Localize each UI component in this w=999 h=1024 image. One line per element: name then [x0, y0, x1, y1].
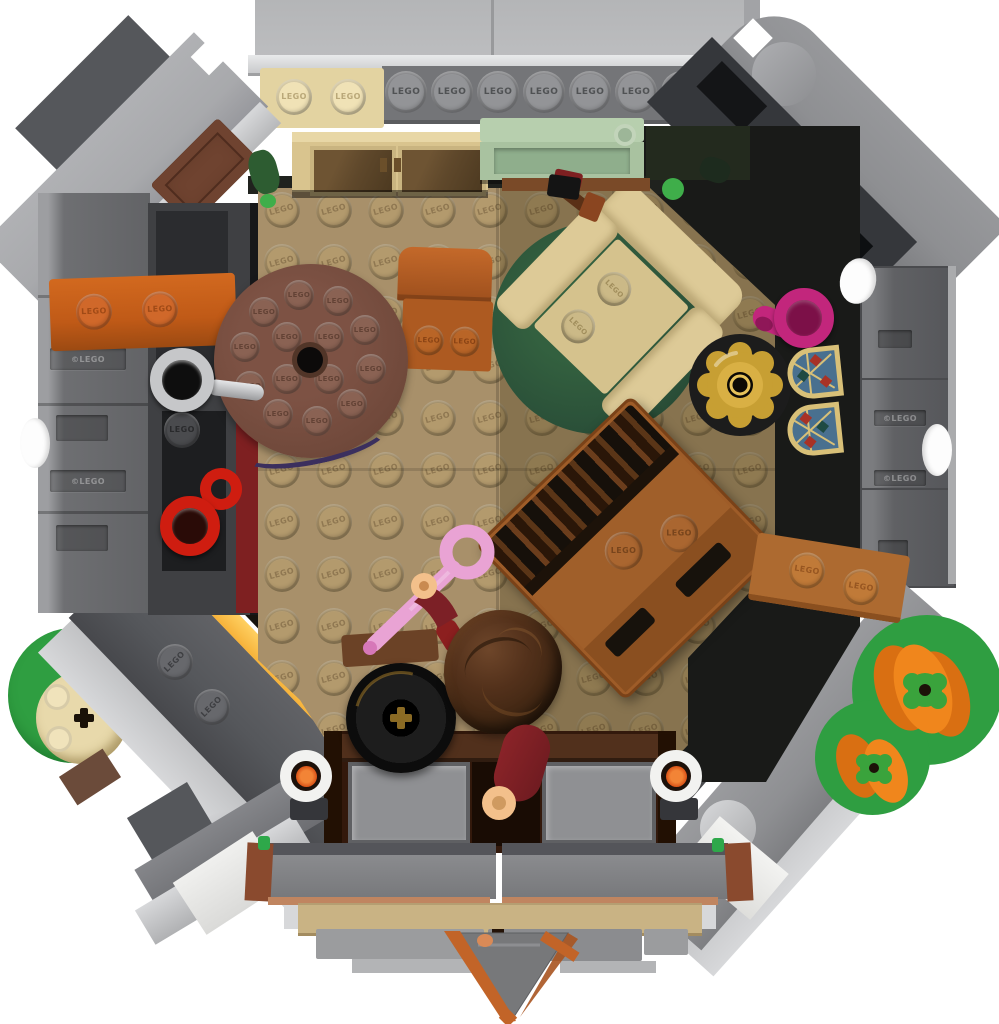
stud: LEGO	[413, 325, 444, 356]
stud-label: LEGO	[281, 93, 307, 101]
stud-label: LEGO	[568, 316, 589, 337]
stud-label: LEGO	[373, 203, 400, 217]
stud-label: LEGO	[373, 255, 400, 269]
stud-label: LEGO	[321, 619, 348, 633]
front-wall-brown-strip	[245, 842, 274, 901]
stud-label: LEGO	[477, 203, 504, 217]
pumpkin-small	[830, 728, 916, 809]
right-wall-lego-tile: ©LEGO	[874, 470, 926, 486]
stud-label: LEGO	[321, 203, 348, 217]
stud-label: LEGO	[530, 88, 559, 97]
stud: LEGO	[272, 322, 302, 352]
tile-label: ©LEGO	[71, 355, 105, 364]
black-cauldron	[346, 663, 456, 773]
stud-label: LEGO	[269, 619, 296, 633]
stud: LEGO	[569, 71, 611, 113]
cabinet-glass-door	[398, 146, 486, 196]
front-wall-lip	[502, 843, 728, 855]
pumpkins	[830, 608, 999, 813]
stud: LEGO	[356, 354, 386, 384]
cabinet-top-bar: LEGOLEGO	[260, 68, 384, 128]
leaf-stud	[662, 178, 684, 200]
stud: LEGO	[554, 302, 602, 350]
leaf-stud	[260, 194, 276, 208]
stud-label: LEGO	[163, 650, 187, 674]
stud: LEGO	[323, 286, 353, 316]
left-wall-recess	[56, 525, 108, 551]
stud: LEGO	[316, 556, 352, 592]
step-cap	[700, 905, 716, 929]
stud-label: LEGO	[425, 203, 452, 217]
stud: LEGO	[590, 265, 638, 313]
stud: LEGO	[316, 504, 352, 540]
stud-label: LEGO	[318, 334, 341, 341]
stud-label: LEGO	[267, 411, 290, 418]
stud-label: LEGO	[321, 671, 348, 685]
chair-back	[397, 246, 493, 303]
hand-tool	[546, 176, 616, 226]
stud-label: LEGO	[611, 547, 637, 555]
stud: LEGO	[249, 297, 279, 327]
stud: LEGO	[276, 79, 312, 115]
right-wall-recess	[878, 330, 912, 348]
step-gray	[644, 929, 688, 955]
stud-label: LEGO	[288, 292, 311, 299]
front-wall-panel	[502, 843, 728, 899]
tile-label: ©LEGO	[883, 474, 917, 483]
stud-label: LEGO	[200, 695, 224, 719]
stud: LEGO	[141, 291, 178, 328]
flesh-knob	[477, 934, 493, 947]
front-wall-lip	[268, 843, 496, 855]
stud: LEGO	[314, 322, 344, 352]
doormat	[542, 762, 656, 844]
left-wall-lego-tile: ©LEGO	[50, 470, 126, 492]
shelf-side-stud	[614, 124, 636, 146]
green-clip	[712, 838, 724, 852]
stud-label: LEGO	[318, 376, 341, 383]
stud: LEGO	[272, 364, 302, 394]
stump-stud	[46, 726, 72, 752]
hinge-bump	[922, 424, 952, 476]
stud: LEGO	[597, 524, 651, 578]
stud: LEGO	[385, 71, 427, 113]
candle	[276, 746, 338, 824]
tile-label: ©LEGO	[883, 414, 917, 423]
mug-handle	[207, 379, 265, 402]
stained-glass-window	[780, 399, 846, 461]
cauldron-axle	[397, 707, 405, 729]
stud-label: LEGO	[147, 305, 173, 314]
stud-label: LEGO	[335, 93, 361, 101]
tile-label: ©LEGO	[71, 477, 105, 486]
mug-body	[150, 348, 214, 412]
orange-wall-bracket: LEGOLEGO	[49, 273, 237, 351]
stud-label: LEGO	[354, 327, 377, 334]
stud-label: LEGO	[269, 515, 296, 529]
stud-label: LEGO	[276, 376, 299, 383]
right-wall-edge	[948, 266, 956, 584]
lego-hut-top-view: LEGOLEGOLEGOLEGOLEGOLEGOLEGOLEGO LEGOLEG…	[0, 0, 999, 1024]
stud-label: LEGO	[321, 567, 348, 581]
stud: LEGO	[75, 293, 112, 330]
stud: LEGO	[449, 326, 480, 357]
cabinet-bevel	[292, 132, 488, 142]
stud-label: LEGO	[666, 529, 692, 537]
hinge-bump	[20, 418, 50, 468]
candle	[646, 746, 708, 824]
jug-body	[774, 288, 834, 348]
left-wall-recess	[56, 415, 108, 441]
silver-mug	[148, 344, 266, 432]
wall-seam	[38, 403, 150, 406]
stud: LEGO	[263, 399, 293, 429]
stud-label: LEGO	[253, 309, 276, 316]
stud: LEGO	[264, 556, 300, 592]
stud-label: LEGO	[276, 334, 299, 341]
stump-stud	[44, 684, 70, 710]
stud-label: LEGO	[269, 567, 296, 581]
stud: LEGO	[330, 79, 366, 115]
stud-label: LEGO	[425, 411, 452, 425]
cabinet-handle	[380, 158, 387, 172]
stud: LEGO	[523, 71, 565, 113]
stud: LEGO	[420, 400, 456, 436]
left-wall-lego-tile: ©LEGO	[50, 348, 126, 370]
left-wall-outer: ©LEGO ©LEGO	[38, 193, 150, 613]
wall-seam	[38, 511, 150, 514]
porch-gable	[420, 931, 592, 1024]
doormat	[348, 762, 470, 844]
stud-label: LEGO	[392, 88, 421, 97]
stud: LEGO	[264, 608, 300, 644]
stud: LEGO	[157, 644, 193, 680]
front-wall-panel	[268, 843, 496, 899]
stud-label: LEGO	[622, 88, 651, 97]
stud-label: LEGO	[794, 565, 820, 577]
right-wall-lego-tile: ©LEGO	[874, 410, 926, 426]
stud-label: LEGO	[484, 88, 513, 97]
stud-label: LEGO	[327, 298, 350, 305]
interior-green-dark	[646, 126, 750, 180]
cabinet-shadow	[292, 190, 488, 198]
cabinet-handle	[394, 158, 401, 172]
minifig-hand	[482, 786, 516, 820]
stud: LEGO	[350, 315, 380, 345]
stud-label: LEGO	[321, 515, 348, 529]
red-mug	[154, 468, 262, 566]
stud-label: LEGO	[360, 366, 383, 373]
stud: LEGO	[194, 689, 230, 725]
pumpkin-large	[864, 637, 981, 744]
candle-flame	[296, 766, 317, 787]
candle-flame	[666, 766, 687, 787]
stained-glass-window	[780, 343, 845, 403]
mug-body	[160, 496, 220, 556]
front-wall-brown-strip	[725, 842, 754, 901]
green-clip	[258, 836, 270, 850]
stud-label: LEGO	[81, 307, 107, 316]
stud: LEGO	[284, 280, 314, 310]
stud-label: LEGO	[604, 279, 625, 300]
stud: LEGO	[786, 550, 827, 591]
stud-label: LEGO	[576, 88, 605, 97]
stud-label: LEGO	[417, 336, 440, 344]
stud-label: LEGO	[438, 88, 467, 97]
tool-head	[547, 174, 582, 200]
stud: LEGO	[431, 71, 473, 113]
stud-label: LEGO	[341, 401, 364, 408]
chair-seat: LEGOLEGO	[401, 298, 493, 371]
stud-label: LEGO	[477, 411, 504, 425]
stud: LEGO	[840, 567, 881, 608]
roof-panel-left	[255, 0, 494, 57]
stud: LEGO	[264, 504, 300, 540]
stud-label: LEGO	[453, 338, 476, 346]
stump-axle-hole	[80, 708, 88, 728]
hand-grip-hole	[492, 796, 506, 810]
table-center-hole	[297, 347, 323, 373]
stud: LEGO	[477, 71, 519, 113]
stud-label: LEGO	[848, 581, 874, 593]
